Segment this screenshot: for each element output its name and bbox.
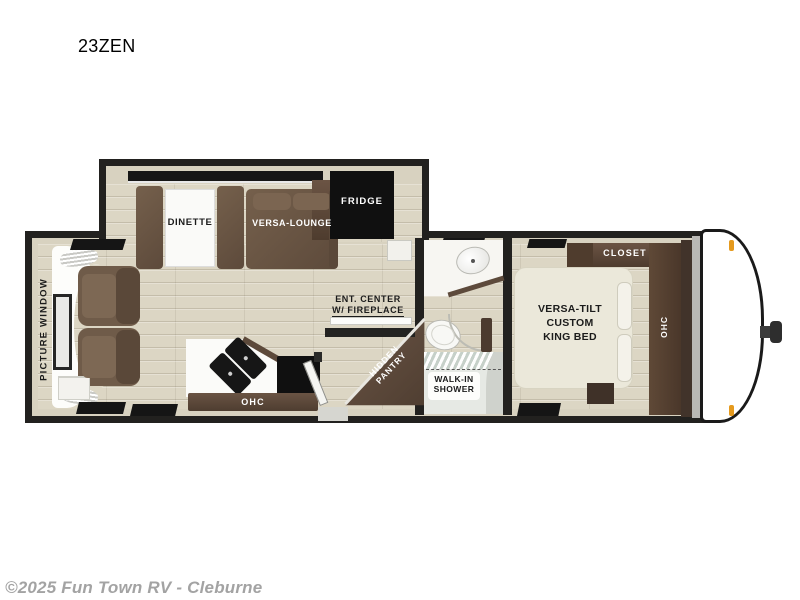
picture-window — [53, 294, 72, 370]
bedroom-ohc-label: OHC — [660, 307, 670, 347]
slideout-window — [128, 171, 323, 183]
entry-door-post — [314, 352, 322, 362]
recliner-2-seat — [82, 336, 116, 378]
living-window-bottom-1 — [76, 402, 126, 414]
marker-light-bottom — [729, 405, 734, 416]
shower-line2: SHOWER — [428, 385, 480, 395]
ent-center-label-line2: W/ FIREPLACE — [323, 305, 413, 315]
recliner-1-seat — [82, 274, 116, 318]
versa-lounge-cushion-left — [253, 193, 291, 210]
page-title: 23ZEN — [78, 36, 136, 57]
shower-wall-curve — [486, 352, 503, 414]
entry-threshold — [318, 407, 348, 421]
hitch-coupler — [770, 321, 782, 343]
fridge-label: FRIDGE — [330, 197, 394, 208]
bed-line2: CUSTOM — [516, 316, 624, 330]
sink-drain-1 — [243, 355, 249, 361]
bath-door-panel — [481, 318, 492, 352]
bedroom-window-top — [527, 239, 567, 248]
copyright-text: ©2025 Fun Town RV - Cleburne — [5, 578, 262, 598]
kitchen-side-shelf — [58, 376, 90, 400]
marker-light-top — [729, 240, 734, 251]
recliner-1-back — [116, 268, 140, 324]
recliner-2-back — [116, 330, 140, 384]
bedroom-window-bottom — [517, 403, 561, 416]
bath-wall-right — [503, 238, 512, 415]
front-cap — [700, 229, 764, 423]
closet-label: CLOSET — [590, 248, 660, 258]
picture-window-label: PICTURE WINDOW — [40, 271, 51, 387]
versa-lounge-cushion-right — [293, 193, 331, 210]
bed-line3: KING BED — [516, 330, 624, 344]
dinette-label: DINETTE — [150, 218, 230, 229]
bed-line1: VERSA-TILT — [516, 302, 624, 316]
kitchen-ohc-label: OHC — [188, 397, 318, 407]
bath-sink-faucet — [471, 259, 475, 263]
king-bed-label: VERSA-TILT CUSTOM KING BED — [516, 302, 624, 345]
shower-track — [426, 369, 501, 370]
floorplan-page: 23ZEN DINETTE VERSA-LOUNGE FRIDGE PICTUR… — [0, 0, 800, 600]
ent-center-shelf — [330, 317, 412, 325]
walkin-shower-label: WALK-IN SHOWER — [428, 375, 480, 395]
versa-lounge-label: VERSA-LOUNGE — [246, 218, 338, 228]
sink-drain-2 — [227, 371, 233, 377]
bed-step — [587, 383, 614, 404]
living-window-bottom-2 — [130, 404, 178, 416]
corner-cabinet — [387, 240, 412, 261]
living-window-top-left — [70, 239, 126, 250]
ent-center-line2-text: W/ FIREPLACE — [332, 305, 404, 317]
ent-center-label-line1: ENT. CENTER — [323, 294, 413, 304]
